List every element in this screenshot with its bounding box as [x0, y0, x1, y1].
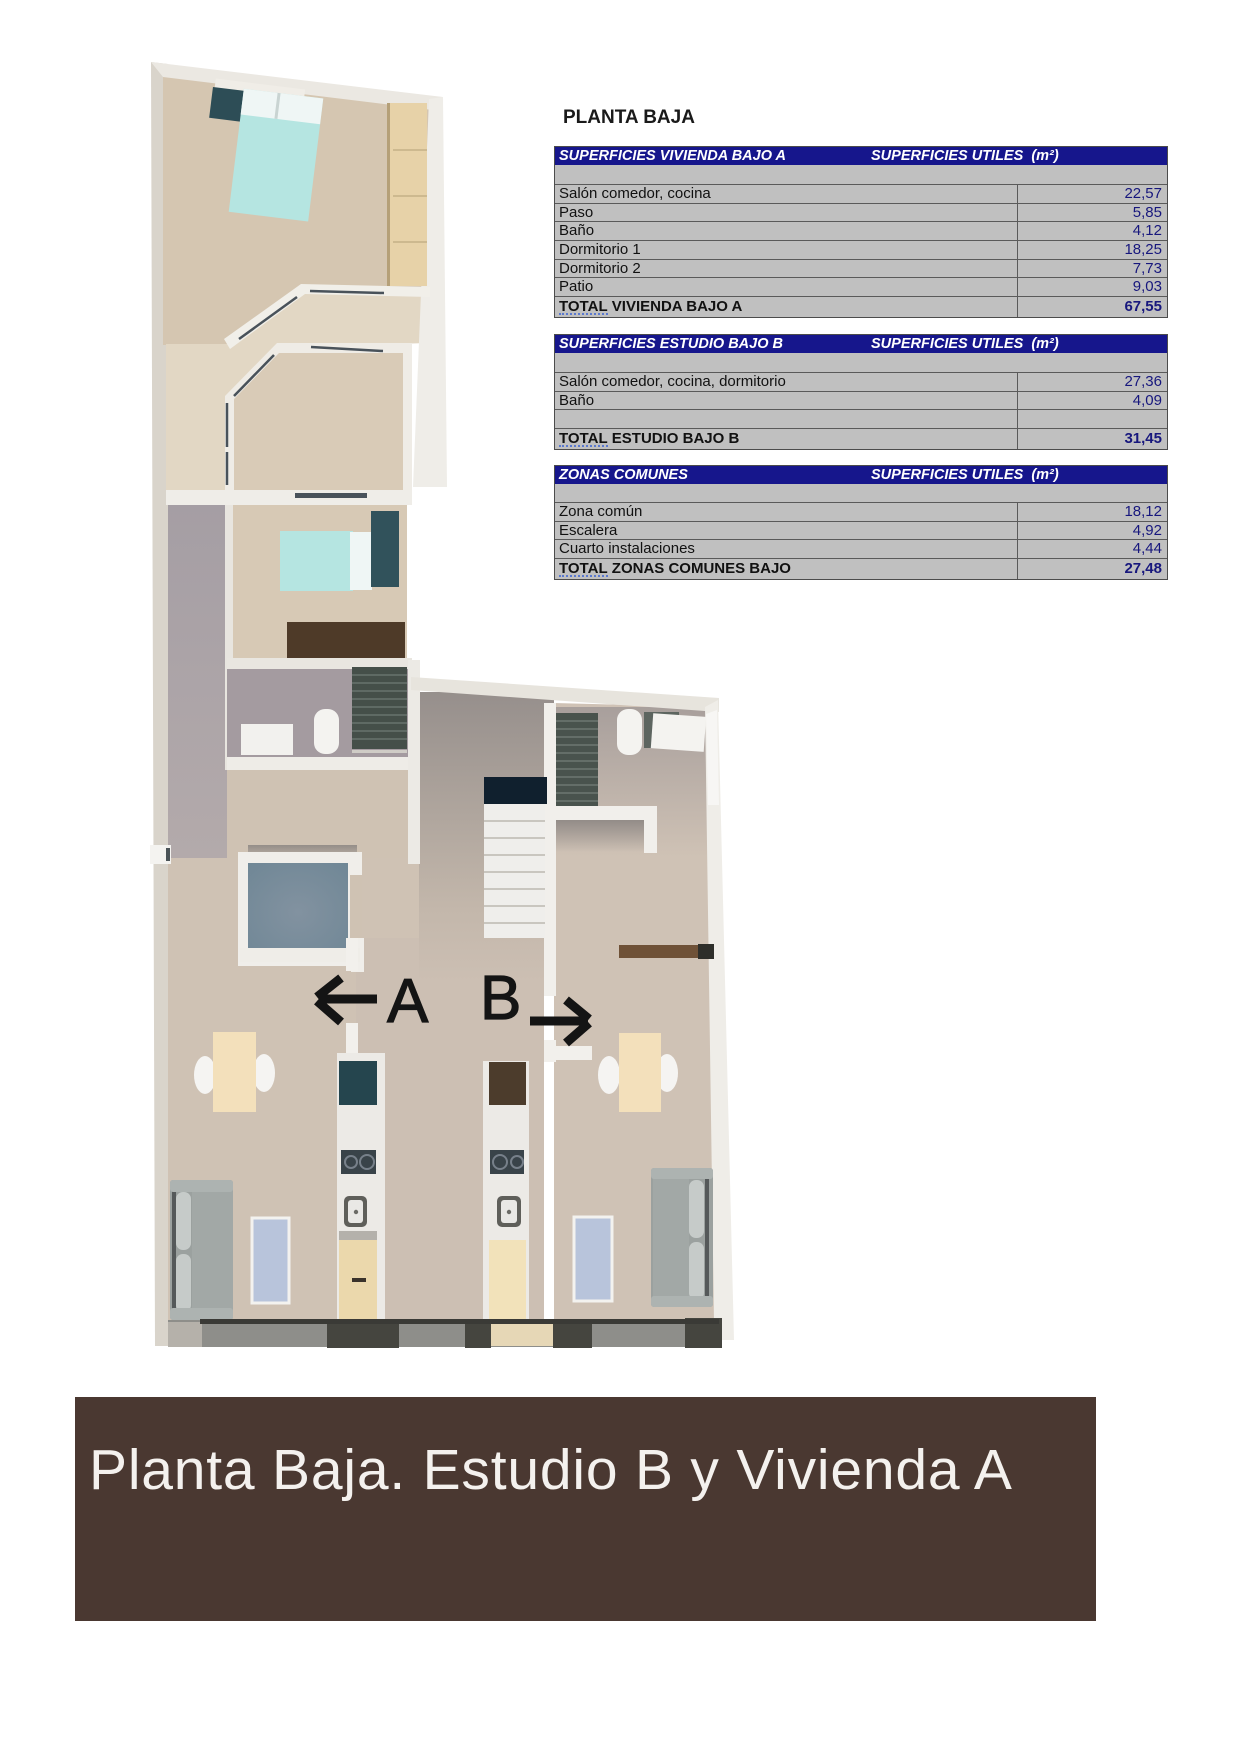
svg-text:B: B	[480, 964, 521, 1033]
svg-text:A: A	[387, 967, 429, 1036]
